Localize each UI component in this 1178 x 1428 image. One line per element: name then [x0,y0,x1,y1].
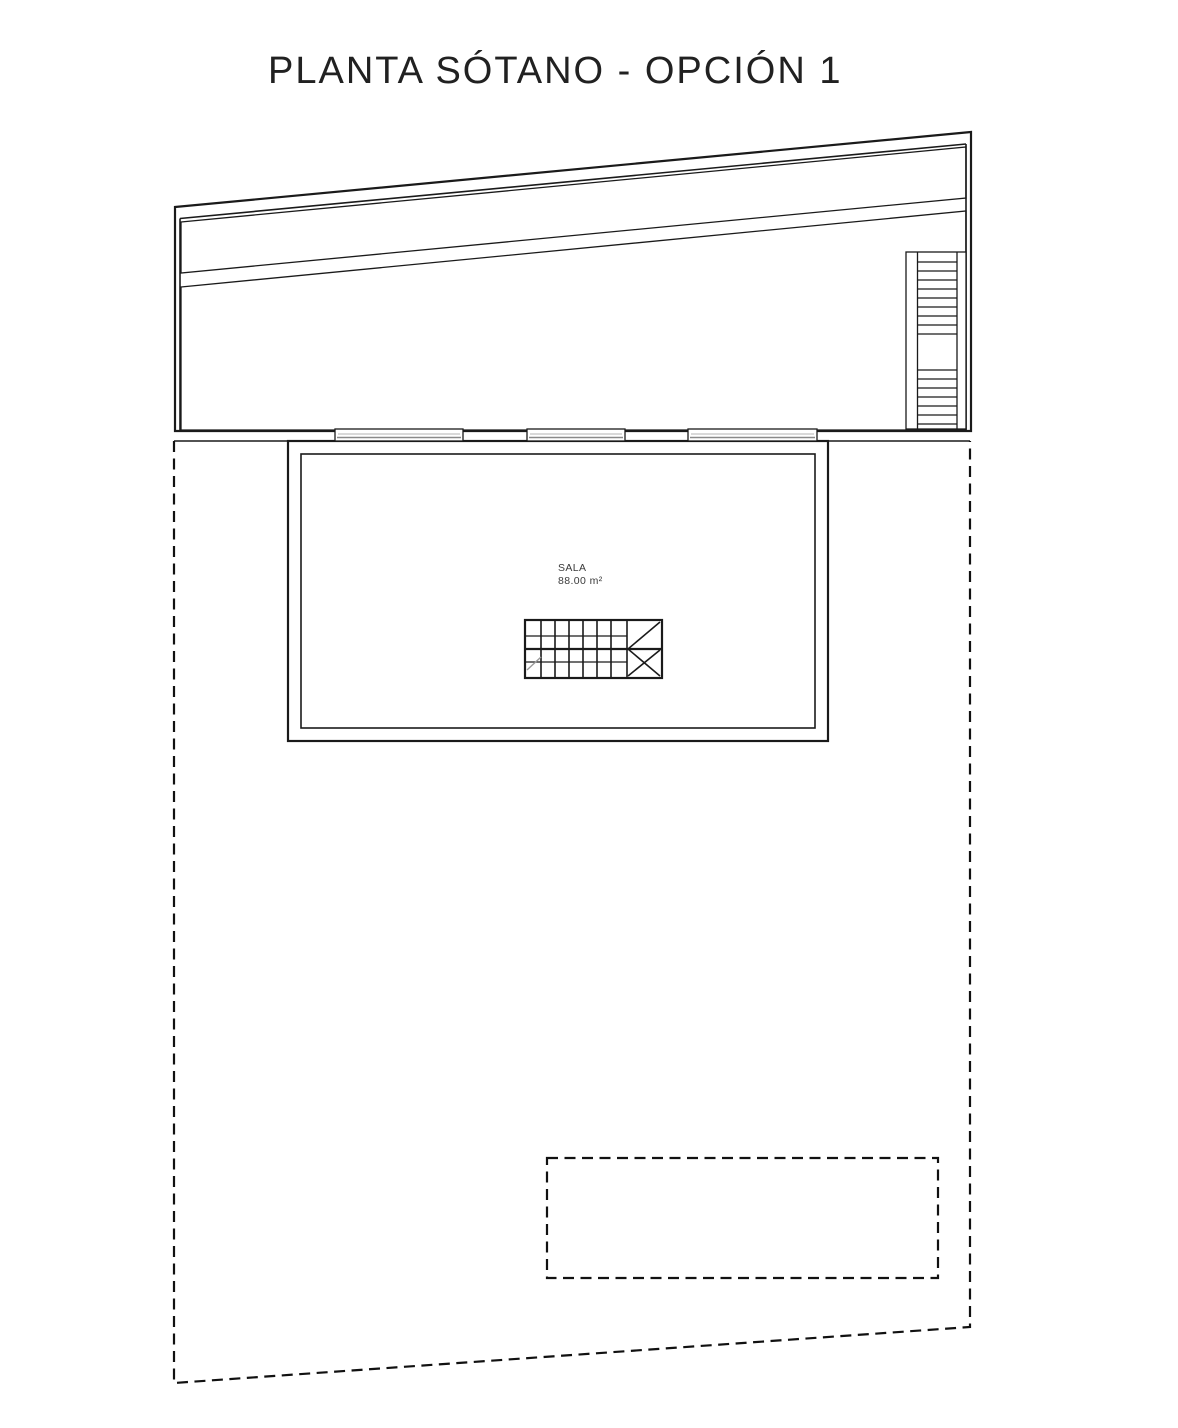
floorplan-drawing: SALA 88.00 m² [0,0,1178,1428]
terrain-section [175,132,971,431]
terrain-outer-wall [175,132,971,431]
room-name-label: SALA [558,562,586,574]
sala-outer-wall [288,441,828,741]
room-area-label: 88.00 m² [558,575,603,587]
window-3 [688,429,817,441]
window-2 [527,429,625,441]
pool-outline [547,1158,938,1278]
interior-stair-symbol [525,620,662,678]
sala-room: SALA 88.00 m² [288,429,828,741]
exterior-stair [906,252,966,429]
floorplan-page: PLANTA SÓTANO - OPCIÓN 1 [0,0,1178,1428]
window-1 [335,429,463,441]
plot-section: SALA 88.00 m² [174,429,970,1383]
